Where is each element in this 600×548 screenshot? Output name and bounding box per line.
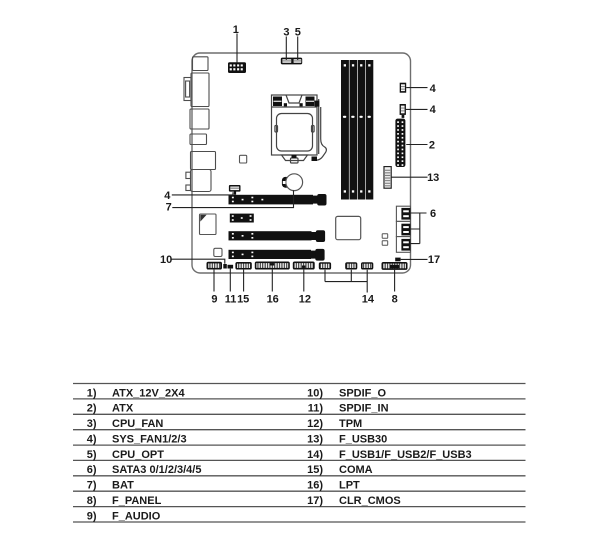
svg-text:9: 9 <box>211 294 217 306</box>
svg-text:SPDIF_O: SPDIF_O <box>339 387 387 399</box>
svg-text:15: 15 <box>237 294 249 306</box>
svg-text:5): 5) <box>87 449 97 461</box>
svg-text:12): 12) <box>307 418 323 430</box>
svg-text:F_USB1/F_USB2/F_USB3: F_USB1/F_USB2/F_USB3 <box>339 449 472 461</box>
svg-text:LPT: LPT <box>339 480 360 492</box>
svg-text:1): 1) <box>87 387 97 399</box>
svg-text:CLR_CMOS: CLR_CMOS <box>339 495 401 507</box>
svg-text:17: 17 <box>428 254 440 266</box>
svg-text:10: 10 <box>160 254 172 266</box>
svg-text:14): 14) <box>307 449 323 461</box>
svg-text:SYS_FAN1/2/3: SYS_FAN1/2/3 <box>112 434 187 446</box>
svg-text:F_AUDIO: F_AUDIO <box>112 510 161 522</box>
svg-text:BAT: BAT <box>112 480 134 492</box>
svg-text:COMA: COMA <box>339 464 373 476</box>
svg-text:4: 4 <box>164 190 171 202</box>
svg-text:6): 6) <box>87 464 97 476</box>
svg-text:1: 1 <box>233 24 239 36</box>
svg-text:13: 13 <box>427 172 439 184</box>
svg-text:F_USB30: F_USB30 <box>339 434 387 446</box>
svg-text:SATA3 0/1/2/3/4/5: SATA3 0/1/2/3/4/5 <box>112 464 201 476</box>
svg-text:CPU_OPT: CPU_OPT <box>112 449 164 461</box>
svg-text:9): 9) <box>87 510 97 522</box>
svg-text:8: 8 <box>392 294 398 306</box>
svg-text:SPDIF_IN: SPDIF_IN <box>339 403 389 415</box>
svg-text:3): 3) <box>87 418 97 430</box>
svg-text:4: 4 <box>430 83 437 95</box>
svg-text:11): 11) <box>308 403 324 415</box>
svg-text:8): 8) <box>87 495 97 507</box>
svg-text:ATX: ATX <box>112 403 134 415</box>
svg-text:4: 4 <box>430 104 437 116</box>
svg-text:6: 6 <box>430 208 436 220</box>
svg-text:F_PANEL: F_PANEL <box>112 495 162 507</box>
svg-text:TPM: TPM <box>339 418 362 430</box>
svg-text:7): 7) <box>87 480 97 492</box>
svg-text:15): 15) <box>307 464 323 476</box>
svg-text:11: 11 <box>225 294 237 306</box>
svg-text:7: 7 <box>166 202 172 214</box>
svg-text:10): 10) <box>307 387 323 399</box>
svg-text:12: 12 <box>299 294 311 306</box>
svg-text:16): 16) <box>307 480 323 492</box>
svg-text:4): 4) <box>87 434 97 446</box>
svg-text:13): 13) <box>307 434 323 446</box>
svg-text:CPU_FAN: CPU_FAN <box>112 418 163 430</box>
svg-text:17): 17) <box>307 495 323 507</box>
svg-text:3: 3 <box>283 27 289 39</box>
svg-text:2: 2 <box>429 140 435 152</box>
svg-text:ATX_12V_2X4: ATX_12V_2X4 <box>112 387 185 399</box>
svg-text:16: 16 <box>267 294 279 306</box>
svg-text:5: 5 <box>295 27 301 39</box>
svg-text:14: 14 <box>362 294 375 306</box>
svg-text:2): 2) <box>87 403 97 415</box>
